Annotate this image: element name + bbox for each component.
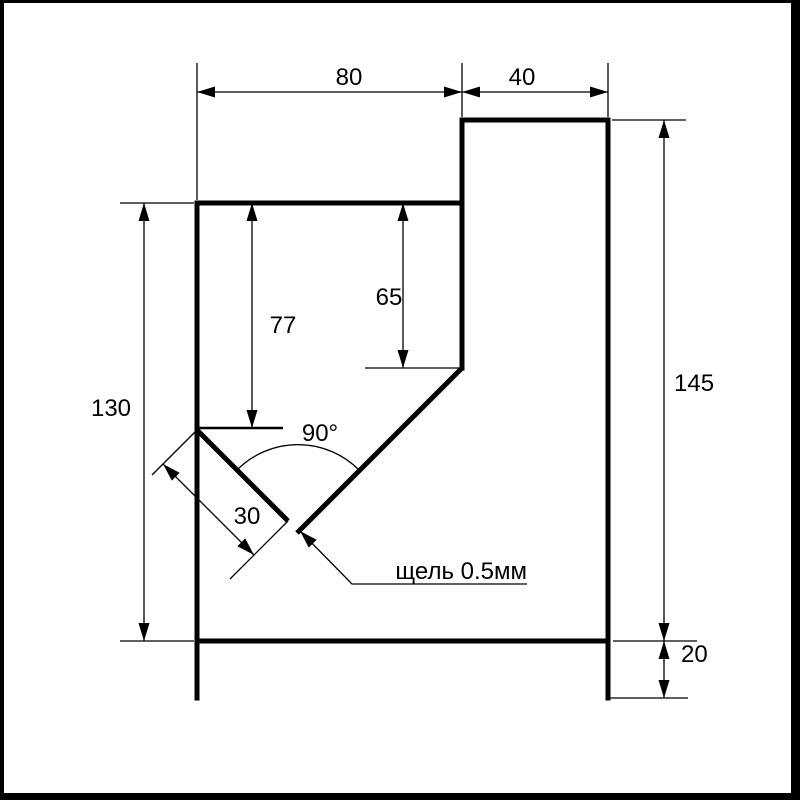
arrowhead-down-icon [139, 623, 150, 641]
arrowhead-down-icon [247, 410, 258, 428]
arrowhead-down-icon [659, 623, 670, 641]
arrowhead-up-icon [247, 203, 258, 221]
dim-label-right-height: 145 [674, 370, 714, 397]
arrowhead-down-icon [398, 350, 409, 368]
arrowhead-up-icon [659, 120, 670, 138]
drawing-canvas: 80 40 130 77 65 145 20 30 90° щель 0.5мм [0, 0, 800, 800]
dim-label-notch-length: 30 [234, 503, 261, 530]
dim-label-top-right-width: 40 [509, 64, 536, 91]
arrowhead-up-icon [398, 203, 409, 221]
technical-drawing: 80 40 130 77 65 145 20 30 90° щель 0.5мм [0, 0, 800, 800]
dim-label-inner-right-depth: 65 [376, 284, 403, 311]
dimension-lines [144, 92, 664, 698]
ext-notch-length-1 [152, 430, 197, 475]
arrowhead-left-icon [197, 87, 215, 98]
arrowhead-left-icon [462, 87, 480, 98]
arrowhead-up-icon [659, 641, 670, 659]
arrowhead-down-icon [659, 680, 670, 698]
arrowhead-up-icon [139, 203, 150, 221]
dim-label-notch-angle: 90° [302, 420, 338, 447]
dim-label-inner-left-depth: 77 [270, 312, 297, 339]
slot-note-label: щель 0.5мм [395, 558, 527, 585]
dim-arc-notch-angle [237, 445, 359, 470]
arrowhead-right-icon [444, 87, 462, 98]
arrowhead-right-icon [590, 87, 608, 98]
dim-label-left-height: 130 [91, 395, 131, 422]
arrowheads [139, 87, 670, 699]
dim-label-foot-height: 20 [681, 641, 708, 668]
notch-right-flank [297, 368, 462, 533]
dim-label-top-width: 80 [336, 64, 363, 91]
